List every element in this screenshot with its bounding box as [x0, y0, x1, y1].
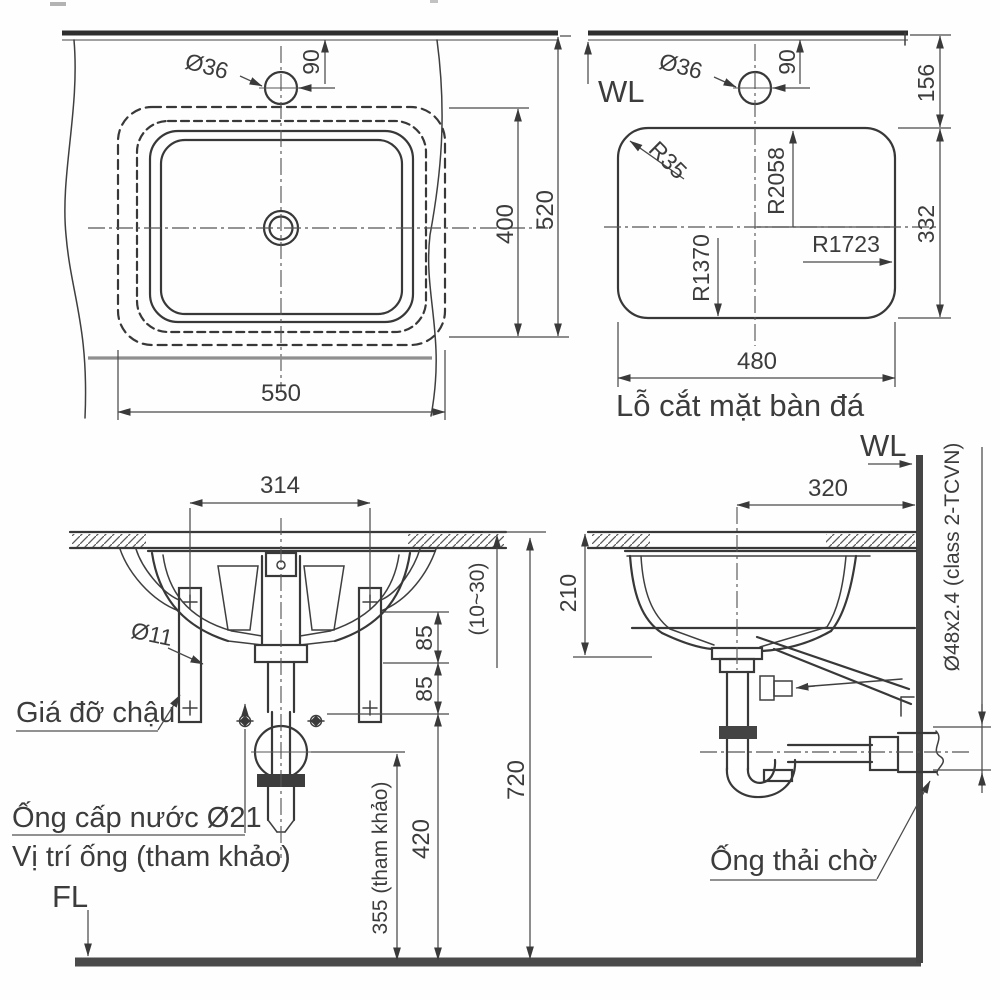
- dim-radius-side: R1723: [812, 231, 880, 257]
- dim-counter-thickness: (10~30): [466, 563, 489, 636]
- supply-pipe-label: Ống cấp nước Ø21: [12, 800, 262, 834]
- dim-bowl-depth: 210: [555, 574, 581, 612]
- pipe-spec-label: Ø48x2.4 (class 2-TCVN): [941, 443, 964, 672]
- dim-inner-depth: 400: [492, 204, 519, 244]
- plan-view: Ø36 90 400 520 550: [62, 33, 571, 420]
- cutout-caption: Lỗ cắt mặt bàn đá: [616, 388, 865, 423]
- dim-gap-lower: 85: [411, 676, 437, 702]
- counter-hatch-right: [826, 534, 915, 547]
- front-view: Ø11 Giá đỡ chậu Ống cấp nước Ø21 Vị trí …: [12, 472, 546, 960]
- technical-drawing: Ø36 90 400 520 550 WL Ø36 9: [0, 0, 1000, 1000]
- drawing-sheet: Ø36 90 400 520 550 WL Ø36 9: [0, 0, 1000, 1000]
- wall-line: [916, 455, 923, 963]
- scan-artifacts: [50, 0, 438, 6]
- waste-pipe-label-group: Ống thải chờ: [710, 781, 930, 880]
- side-view: WL: [555, 428, 991, 963]
- pipe-break: [936, 731, 943, 775]
- floor-level-label: FL: [52, 879, 88, 914]
- dim-gap-upper: 85: [411, 625, 437, 651]
- front-labels: Ø11 Giá đỡ chậu Ống cấp nước Ø21 Vị trí …: [12, 617, 291, 956]
- dim-hole-offset: 90: [298, 49, 324, 75]
- dim-radius-back: R2058: [763, 147, 789, 215]
- cutout-view: WL Ø36 90 R35 R2058 R1723 R1370 480: [588, 33, 951, 423]
- dim-radius-front: R1370: [688, 234, 714, 302]
- wall-escutcheon: [870, 737, 898, 770]
- dim-bracket-span: 314: [260, 472, 300, 499]
- pipe-position-label: Vị trí ống (tham khảo): [12, 841, 291, 873]
- dim-supply-height: 420: [408, 819, 435, 859]
- break-line-left: [65, 40, 86, 418]
- union-nut: [719, 726, 757, 739]
- dim-bracket-hole: Ø11: [129, 617, 175, 651]
- dim-corner-radius: R35: [644, 136, 692, 184]
- counter-hatch-left: [592, 534, 650, 547]
- mounting-brackets: [179, 588, 381, 722]
- bracket-label: Giá đỡ chậu: [16, 697, 175, 729]
- water-level-label: WL: [598, 74, 645, 109]
- counter-hatch-right: [408, 534, 504, 547]
- dim-width: 550: [261, 380, 301, 407]
- dim-cutout-height: 332: [913, 205, 939, 243]
- dim-faucet-hole: Ø36: [657, 48, 706, 84]
- counter-hatch-left: [72, 534, 146, 547]
- waste-pipe-label: Ống thải chờ: [710, 843, 877, 877]
- dim-depth: 320: [808, 475, 848, 502]
- tee-fitting: [760, 676, 774, 700]
- dim-ref-height: 355 (tham khảo): [369, 782, 392, 935]
- dim-hole-offset: 90: [774, 49, 800, 75]
- water-level-label: WL: [860, 428, 907, 463]
- dim-total-depth: 520: [532, 190, 559, 230]
- dim-faucet-hole: Ø36: [183, 48, 232, 84]
- dim-cutout-top: 156: [913, 64, 939, 102]
- dim-cutout-width: 480: [737, 348, 777, 375]
- dim-total-height: 720: [503, 760, 530, 800]
- sink-profile: [625, 551, 916, 651]
- side-dimensions: 320 210 Ø48x2.4 (class 2-TCVN): [555, 443, 991, 793]
